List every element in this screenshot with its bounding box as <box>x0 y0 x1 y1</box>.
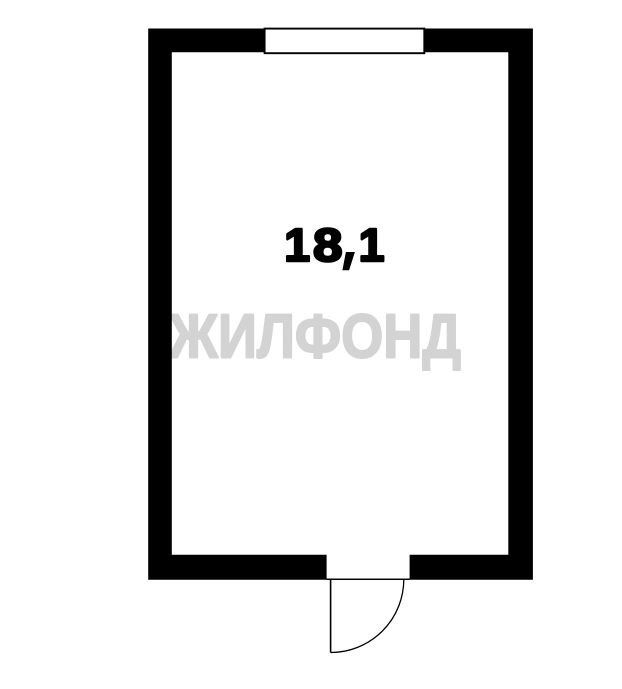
svg-text:1: 1 <box>359 219 385 271</box>
svg-text:8: 8 <box>313 219 343 271</box>
svg-text:ЖИЛФОНД: ЖИЛФОНД <box>168 302 461 371</box>
svg-text:1: 1 <box>284 219 310 271</box>
